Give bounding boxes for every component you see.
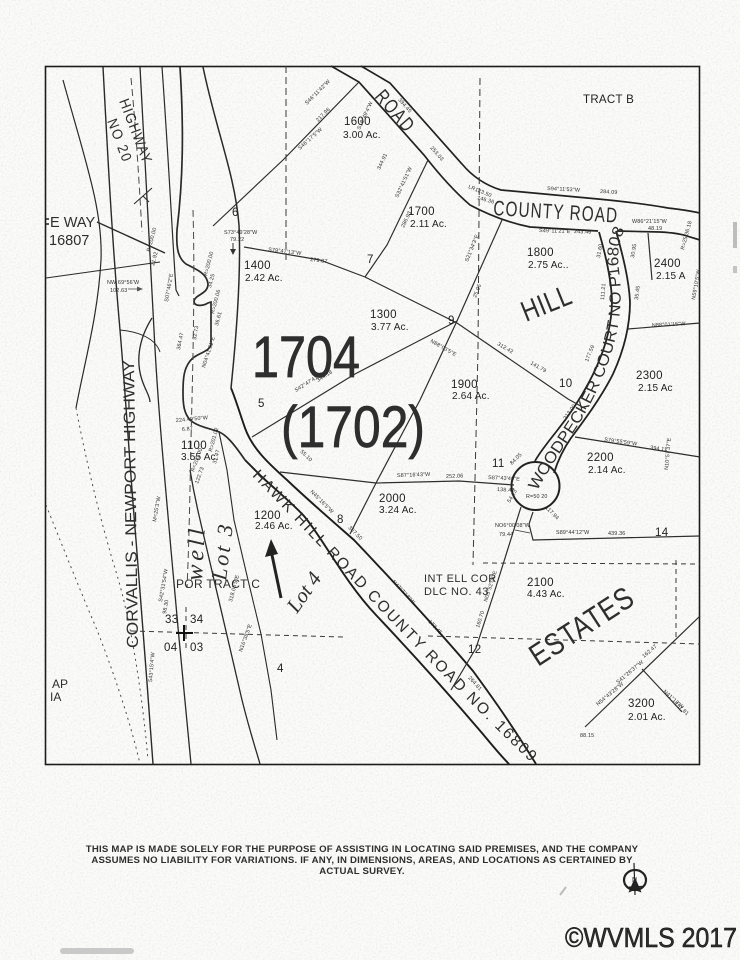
svg-text:252.06: 252.06 <box>446 473 464 480</box>
svg-text:R=50 20: R=50 20 <box>526 494 548 500</box>
svg-text:NO6°00'08"W: NO6°00'08"W <box>495 523 531 529</box>
svg-text:2.64 Ac.: 2.64 Ac. <box>452 391 490 402</box>
svg-text:1800: 1800 <box>527 247 554 259</box>
svg-text:2.75 Ac..: 2.75 Ac.. <box>528 260 569 271</box>
svg-text:TRACT B: TRACT B <box>583 94 634 106</box>
svg-text:ACTUAL SURVEY.: ACTUAL SURVEY. <box>319 866 405 877</box>
svg-text:2400: 2400 <box>654 258 681 270</box>
svg-text:2.01 Ac.: 2.01 Ac. <box>628 712 666 723</box>
svg-text:3.24 Ac.: 3.24 Ac. <box>379 505 417 516</box>
svg-text:12: 12 <box>468 644 481 656</box>
svg-text:284.09: 284.09 <box>600 189 618 196</box>
svg-text:6: 6 <box>232 207 239 219</box>
svg-text:S49°11'21"E: S49°11'21"E <box>539 228 571 235</box>
svg-text:16807: 16807 <box>49 233 89 249</box>
svg-text:2100: 2100 <box>527 577 554 589</box>
svg-text:2200: 2200 <box>587 452 614 464</box>
svg-text:THIS MAP IS MADE SOLELY FOR TH: THIS MAP IS MADE SOLELY FOR THE PURPOSE … <box>86 844 639 855</box>
svg-text:1900: 1900 <box>451 379 478 391</box>
svg-text:E WAY: E WAY <box>50 215 95 231</box>
svg-text:1400: 1400 <box>244 260 271 272</box>
svg-text:4.43 Ac.: 4.43 Ac. <box>527 589 565 600</box>
svg-text:33: 33 <box>165 614 178 626</box>
svg-text:3200: 3200 <box>628 698 655 710</box>
svg-text:2300: 2300 <box>636 370 663 382</box>
svg-text:14: 14 <box>655 527 669 539</box>
svg-text:4: 4 <box>277 663 284 675</box>
svg-text:48.19: 48.19 <box>648 226 662 232</box>
svg-text:AP: AP <box>52 677 68 691</box>
svg-text:2.42 Ac.: 2.42 Ac. <box>245 273 283 284</box>
svg-text:88.15: 88.15 <box>580 733 594 739</box>
svg-text:NW 69°56'W: NW 69°56'W <box>107 280 140 286</box>
svg-text:138.47: 138.47 <box>497 487 515 494</box>
svg-text:79.22: 79.22 <box>230 237 244 243</box>
svg-text:3.00 Ac.: 3.00 Ac. <box>343 130 381 141</box>
svg-text:8: 8 <box>337 514 344 526</box>
svg-text:©WVMLS 2017: ©WVMLS 2017 <box>565 922 737 953</box>
svg-text:7: 7 <box>367 254 374 266</box>
svg-text:2.15 A: 2.15 A <box>656 271 686 282</box>
svg-text:2000: 2000 <box>379 493 406 505</box>
svg-text:11: 11 <box>492 458 505 470</box>
svg-text:03: 03 <box>190 642 203 654</box>
svg-text:5: 5 <box>258 398 265 410</box>
svg-text:79.44: 79.44 <box>499 532 513 538</box>
svg-text:2.15 Ac: 2.15 Ac <box>638 383 673 394</box>
svg-text:2.46 Ac.: 2.46 Ac. <box>255 521 293 532</box>
svg-text:243.46: 243.46 <box>574 229 592 236</box>
svg-text:9: 9 <box>448 315 455 327</box>
svg-text:04: 04 <box>164 642 178 654</box>
svg-text:ASSUMES NO LIABILITY FOR VARIA: ASSUMES NO LIABILITY FOR VARIATIONS. IF … <box>91 855 633 866</box>
svg-text:S89°44'12"W: S89°44'12"W <box>556 530 590 536</box>
svg-text:6.87: 6.87 <box>182 426 194 433</box>
svg-text:DLC NO. 43: DLC NO. 43 <box>424 586 489 598</box>
svg-text:S73°49'28"W: S73°49'28"W <box>224 230 258 236</box>
svg-text:N: N <box>632 877 637 884</box>
svg-text:2.11 Ac.: 2.11 Ac. <box>410 219 447 230</box>
svg-text:439.36: 439.36 <box>608 531 625 537</box>
svg-text:34: 34 <box>190 614 204 626</box>
svg-text:1300: 1300 <box>370 309 397 321</box>
svg-text:1700: 1700 <box>408 206 435 218</box>
svg-text:10: 10 <box>559 378 572 390</box>
svg-text:3.77 Ac.: 3.77 Ac. <box>371 322 409 333</box>
svg-text:IA: IA <box>50 690 61 704</box>
svg-text:102.63: 102.63 <box>110 288 127 294</box>
svg-text:2.14 Ac.: 2.14 Ac. <box>588 465 626 476</box>
svg-text:S87°16'43"W: S87°16'43"W <box>397 472 431 479</box>
svg-text:INT ELL COR: INT ELL COR <box>424 573 497 585</box>
svg-text:W86°21'15"W: W86°21'15"W <box>632 219 668 225</box>
